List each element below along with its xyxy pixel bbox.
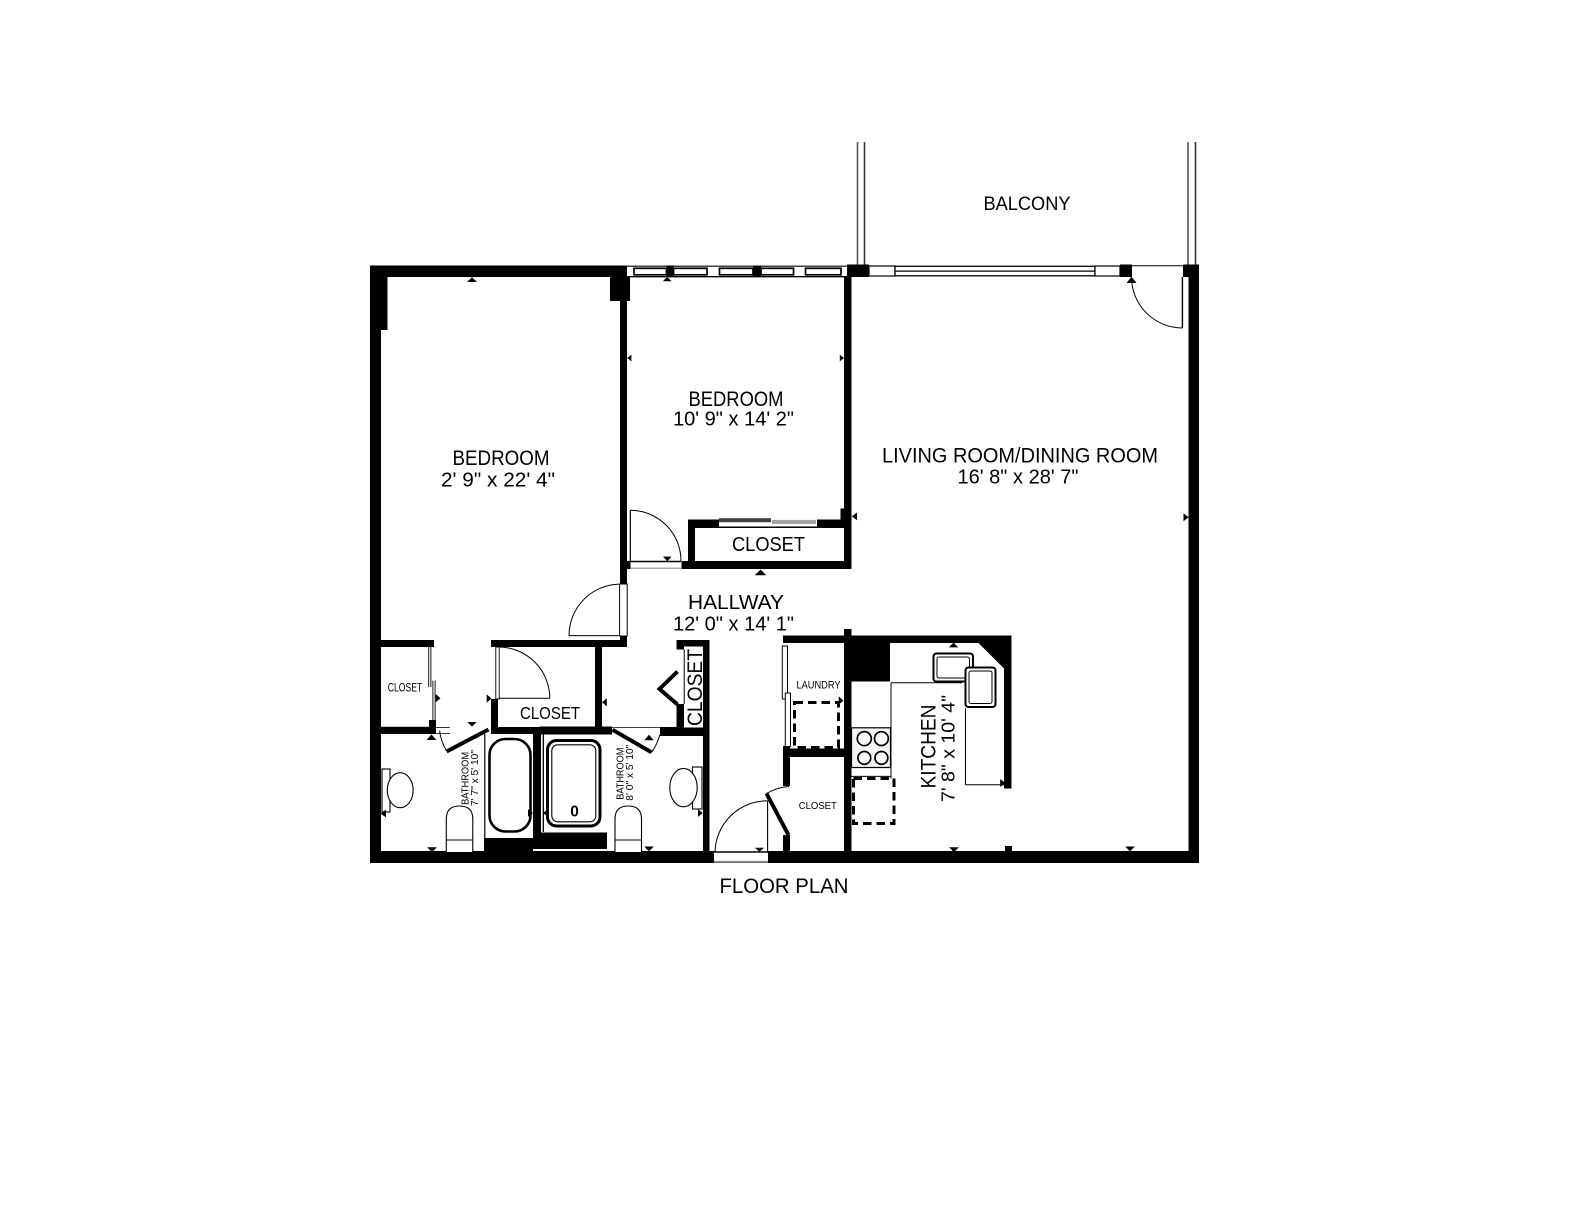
svg-text:BALCONY: BALCONY — [984, 193, 1071, 215]
svg-text:HALLWAY: HALLWAY — [688, 591, 784, 614]
svg-text:CLOSET: CLOSET — [732, 534, 805, 556]
svg-text:LAUNDRY: LAUNDRY — [797, 679, 842, 691]
svg-text:2' 9" x 22' 4": 2' 9" x 22' 4" — [441, 469, 555, 492]
svg-text:8' 0" x 5' 10": 8' 0" x 5' 10" — [624, 744, 636, 800]
svg-text:KITCHEN: KITCHEN — [917, 705, 941, 789]
svg-text:BEDROOM: BEDROOM — [453, 447, 550, 470]
svg-text:FLOOR PLAN: FLOOR PLAN — [720, 875, 849, 898]
svg-text:CLOSET: CLOSET — [520, 703, 580, 723]
svg-text:CLOSET: CLOSET — [799, 800, 838, 812]
svg-text:12' 0" x 14' 1": 12' 0" x 14' 1" — [673, 613, 794, 636]
svg-text:16' 8" x 28' 7": 16' 8" x 28' 7" — [958, 466, 1079, 489]
svg-text:CLOSET: CLOSET — [388, 681, 423, 695]
svg-text:CLOSET: CLOSET — [683, 649, 707, 726]
svg-text:7' 8" x 10' 4": 7' 8" x 10' 4" — [939, 695, 959, 802]
svg-text:LIVING ROOM/DINING ROOM: LIVING ROOM/DINING ROOM — [882, 445, 1158, 468]
svg-text:10' 9" x 14' 2": 10' 9" x 14' 2" — [673, 408, 794, 431]
svg-text:0: 0 — [570, 804, 579, 821]
svg-text:7' 7" x 5' 10": 7' 7" x 5' 10" — [469, 750, 481, 806]
